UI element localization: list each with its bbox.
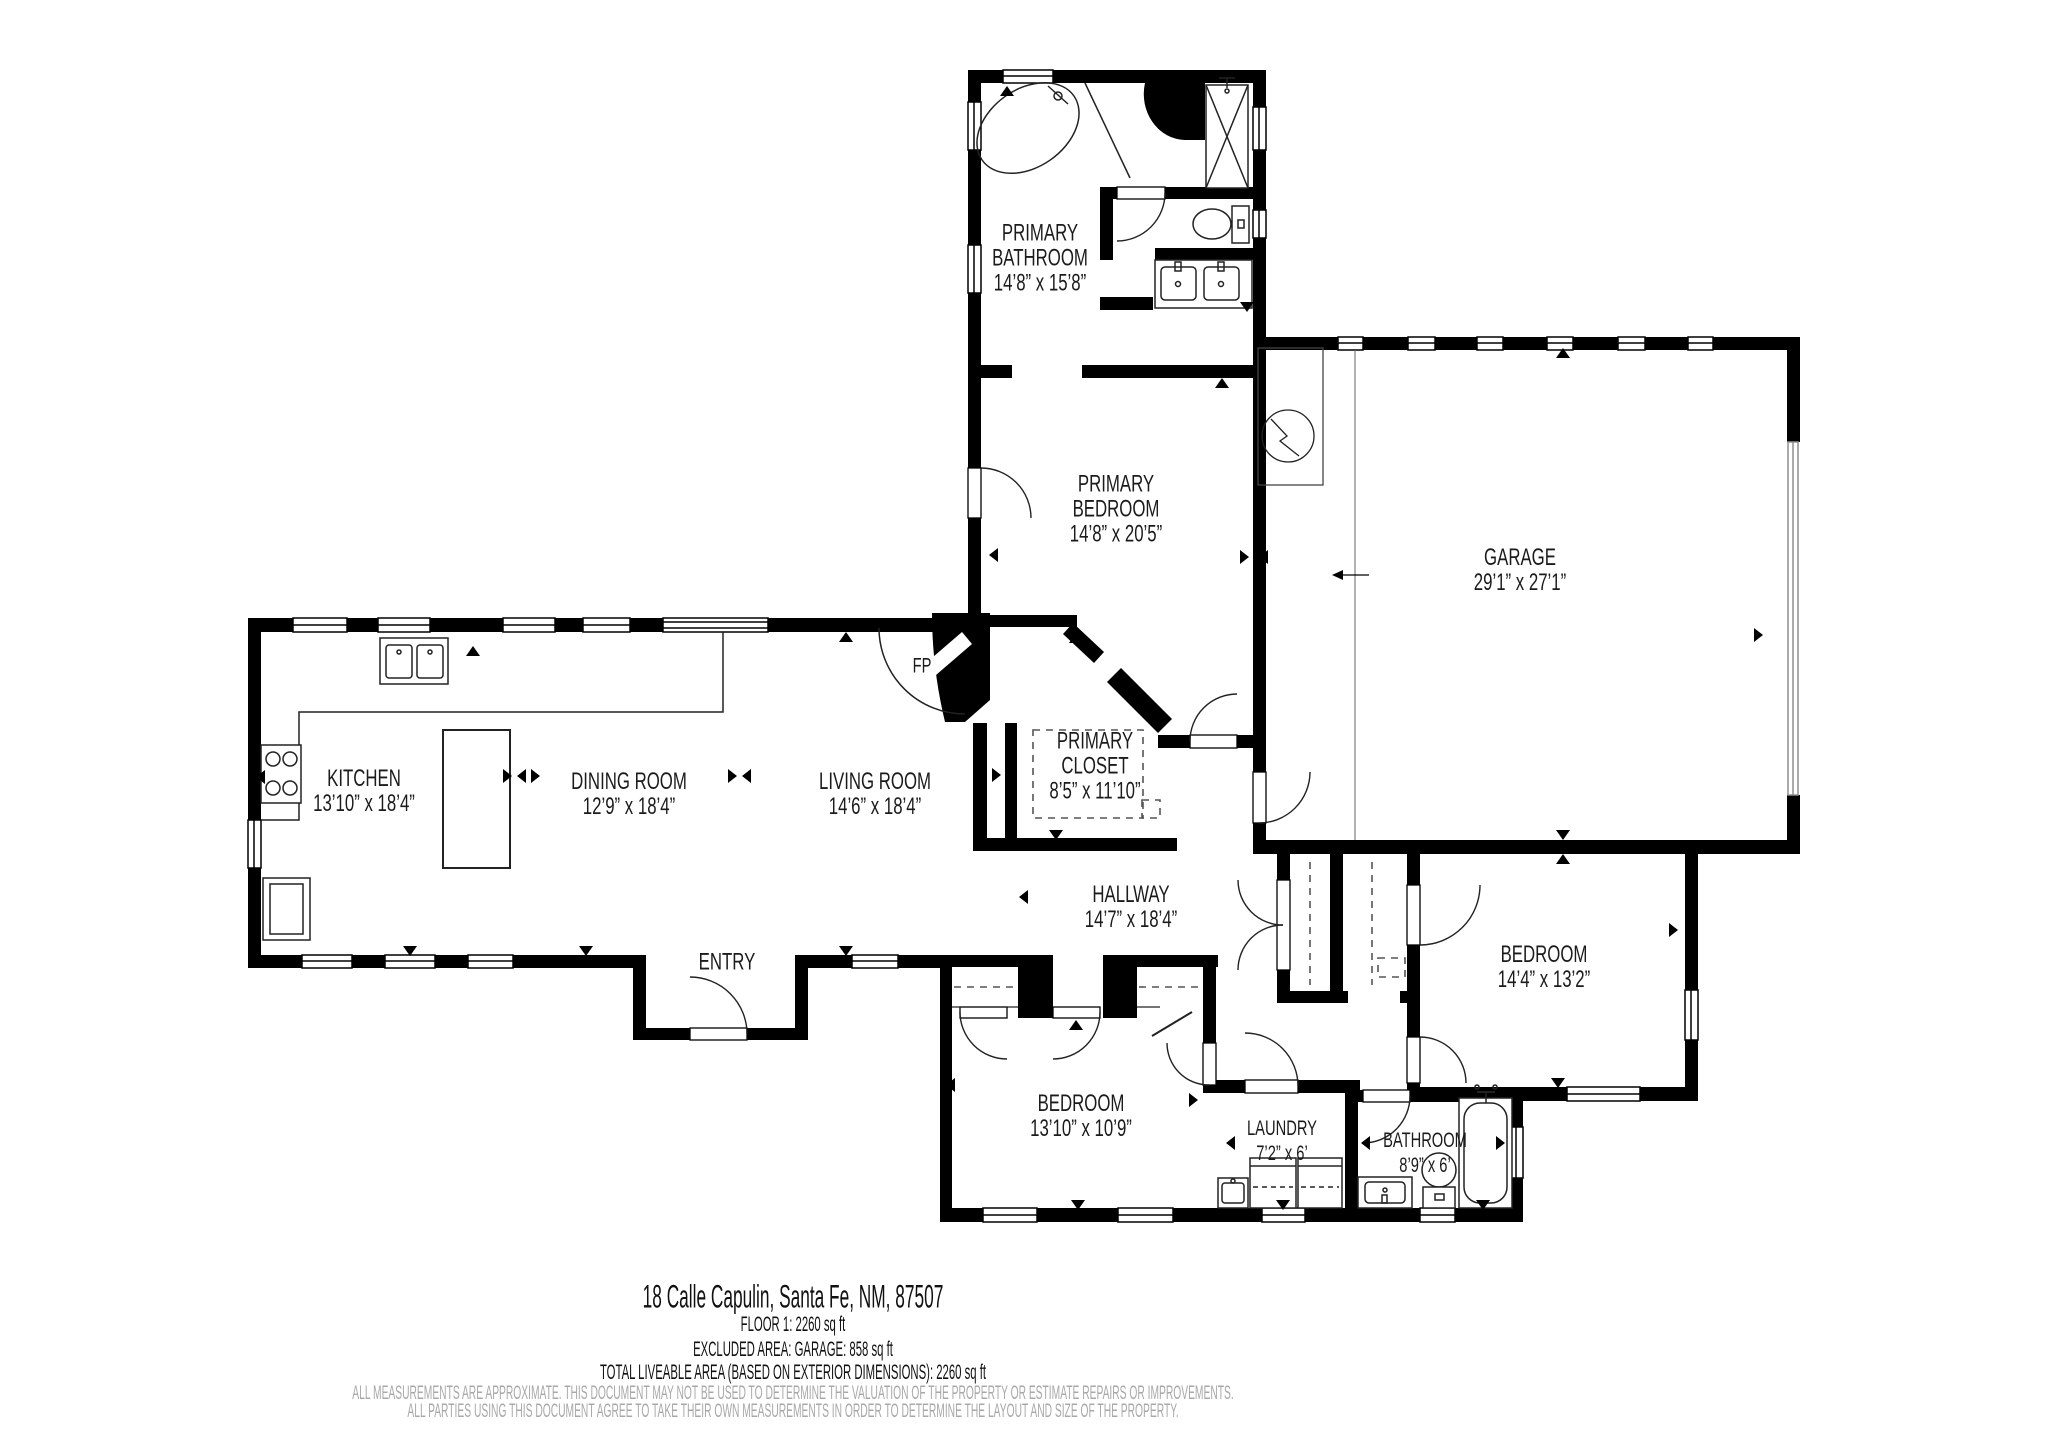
room-name: BATHROOM — [992, 246, 1088, 271]
room-name: BEDROOM — [1498, 942, 1590, 967]
room-name: BEDROOM — [1070, 497, 1162, 522]
room-dimensions: 8’5” x 11’10” — [1049, 779, 1140, 804]
toilet — [1193, 206, 1249, 243]
room-dimensions: 7’2” x 6’ — [1247, 1141, 1317, 1166]
refrigerator — [263, 878, 310, 940]
room-label-garage: GARAGE 29’1” x 27’1” — [1474, 545, 1566, 595]
room-dimensions: 14’7” x 18’4” — [1085, 907, 1177, 932]
room-name: LIVING ROOM — [819, 769, 931, 794]
water-heater — [1262, 410, 1314, 462]
kitchen-island — [443, 730, 510, 868]
room-label-primary-bedroom: PRIMARY BEDROOM 14’8” x 20’5” — [1070, 472, 1162, 547]
room-label-primary-bathroom: PRIMARY BATHROOM 14’8” x 15’8” — [992, 221, 1088, 296]
room-dimensions: 14’6” x 18’4” — [819, 794, 931, 819]
room-name: BATHROOM — [1383, 1128, 1467, 1153]
room-name: FP — [913, 654, 932, 679]
room-dimensions: 13’10” x 10’9” — [1030, 1116, 1132, 1141]
room-dimensions: 29’1” x 27’1” — [1474, 570, 1566, 595]
water-heater-alcove — [1258, 348, 1323, 485]
garage-door — [1788, 442, 1798, 795]
room-name: PRIMARY — [1070, 472, 1162, 497]
shower-stall — [1206, 78, 1248, 188]
room-label-bedroom-south: BEDROOM 13’10” x 10’9” — [1030, 1091, 1132, 1141]
floor-area-line: FLOOR 1: 2260 sq ft — [741, 1313, 846, 1337]
cooktop — [261, 745, 301, 803]
room-dimensions: 12’9” x 18’4” — [571, 794, 687, 819]
fireplace-label: FP — [913, 654, 932, 679]
room-name: GARAGE — [1474, 545, 1566, 570]
room-dimensions: 14’8” x 15’8” — [992, 271, 1088, 296]
room-name: DINING ROOM — [571, 769, 687, 794]
room-dimensions: 14’4” x 13’2” — [1498, 967, 1590, 992]
bathroom-vanity — [1358, 1177, 1412, 1208]
address-title: 18 Calle Capulin, Santa Fe, NM, 87507 — [643, 1279, 944, 1316]
room-name: PRIMARY — [992, 221, 1088, 246]
patio-slider — [663, 618, 768, 632]
room-dimensions: 8’9” x 6’ — [1383, 1153, 1467, 1178]
room-name: BEDROOM — [1030, 1091, 1132, 1116]
room-name: ENTRY — [699, 950, 756, 975]
bathtub — [1459, 1085, 1512, 1208]
room-label-bedroom-east: BEDROOM 14’4” x 13’2” — [1498, 942, 1590, 992]
double-vanity — [1155, 260, 1252, 308]
room-label-hallway: HALLWAY 14’7” x 18’4” — [1085, 882, 1177, 932]
disclaimer-line-2: ALL PARTIES USING THIS DOCUMENT AGREE TO… — [407, 1401, 1178, 1423]
room-label-dining-room: DINING ROOM 12’9” x 18’4” — [571, 769, 687, 819]
room-dimensions: 14’8” x 20’5” — [1070, 522, 1162, 547]
room-label-entry: ENTRY — [699, 950, 756, 975]
floorplan-document: PRIMARY BATHROOM 14’8” x 15’8” PRIMARY B… — [0, 0, 2048, 1448]
door-swings — [690, 193, 1480, 1143]
utility-sink — [1218, 1178, 1248, 1208]
room-name: KITCHEN — [313, 766, 415, 791]
room-label-kitchen: KITCHEN 13’10” x 18’4” — [313, 766, 415, 816]
room-dimensions: 13’10” x 18’4” — [313, 791, 415, 816]
floorplan-drawing — [0, 0, 2048, 1448]
garage-arrow — [1332, 570, 1369, 580]
room-name: LAUNDRY — [1247, 1116, 1317, 1141]
room-label-living-room: LIVING ROOM 14’6” x 18’4” — [819, 769, 931, 819]
excluded-area-line: EXCLUDED AREA: GARAGE: 858 sq ft — [693, 1338, 893, 1362]
room-name: HALLWAY — [1085, 882, 1177, 907]
corner-shower-seat — [1144, 83, 1205, 140]
room-name: PRIMARY — [1049, 729, 1140, 754]
garage-fixtures — [1258, 348, 1369, 840]
room-label-primary-closet: PRIMARY CLOSET 8’5” x 11’10” — [1049, 729, 1140, 804]
kitchen-sink — [380, 638, 448, 684]
room-name: CLOSET — [1049, 754, 1140, 779]
total-area-line: TOTAL LIVEABLE AREA (BASED ON EXTERIOR D… — [600, 1361, 986, 1385]
room-label-bathroom: BATHROOM 8’9” x 6’ — [1383, 1128, 1467, 1178]
room-label-laundry: LAUNDRY 7’2” x 6’ — [1247, 1116, 1317, 1166]
